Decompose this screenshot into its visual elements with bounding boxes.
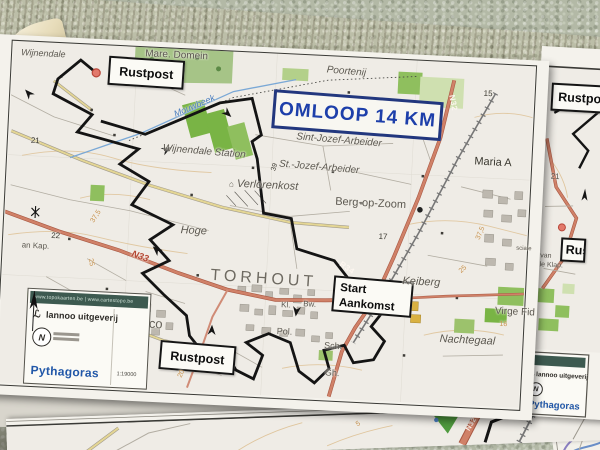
place-label-bw: Bw. — [303, 300, 316, 309]
number-label-22: 22 — [51, 232, 60, 240]
contour-label-25-left: 25 — [87, 258, 95, 267]
place-label-an-kap: an Kap. — [22, 241, 50, 250]
place-label-hoge: Hoge — [180, 225, 207, 237]
main-map-sheet: Wijnendale Mare. Domein Rustpost Poorten… — [0, 34, 549, 421]
place-label-virge-fid: Virge Fid — [495, 307, 535, 319]
number-label-16: 16 — [499, 321, 507, 328]
north-arrow-icon — [26, 289, 40, 334]
place-label-pol: Pol. — [277, 327, 293, 337]
number-label-21-right: 21 — [550, 173, 559, 181]
place-label-gh: Gh. — [325, 368, 340, 378]
publisher-line: ℒ lannoo uitgeverij — [33, 309, 118, 324]
brand-logo: Pythagoras — [30, 363, 99, 380]
ngi-text-bars — [53, 332, 79, 341]
rustpost-label-right-sheet: Rustpost — [550, 83, 600, 115]
number-label-21: 21 — [31, 137, 40, 145]
website-banner: www.topokaarten.be | www.cartestopo.be — [30, 291, 148, 309]
number-label-17: 17 — [378, 233, 387, 241]
rustpost-label-bottom: Rustpost — [158, 340, 236, 375]
place-label-maria-a: Maria A — [474, 156, 512, 169]
number-label-15: 15 — [483, 90, 492, 98]
place-label-sciale: sciale — [516, 246, 532, 253]
house-icon: ⌂ — [229, 179, 234, 188]
rustpost-partial-box: Rustpost — [560, 237, 586, 262]
photo-scene: N32 5 Rustpost 21 22 V — [0, 0, 600, 450]
place-label-keiberg: Keiberg — [402, 276, 440, 289]
place-label-sch: Sch. — [324, 341, 342, 351]
legend-box: www.topokaarten.be | www.cartestopo.be ℒ… — [23, 288, 152, 390]
rustpost-label-top: Rustpost — [107, 56, 185, 90]
scale-text: 1:19000 — [116, 371, 136, 378]
place-label-kl: Kl. — [281, 301, 291, 309]
